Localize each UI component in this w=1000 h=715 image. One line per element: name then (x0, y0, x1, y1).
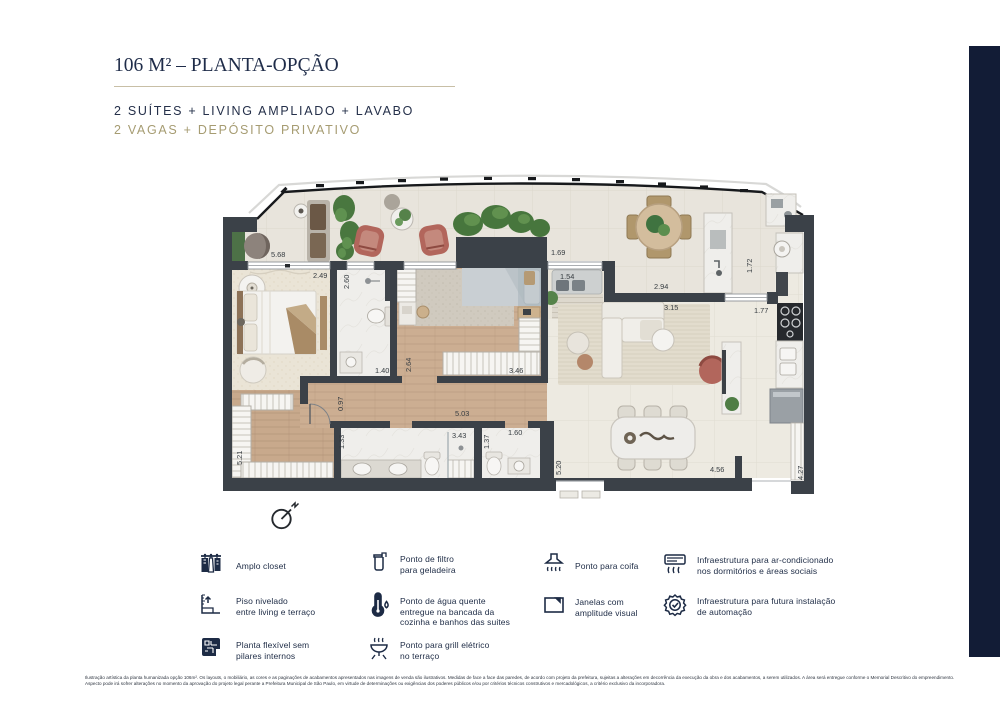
svg-text:5.68: 5.68 (271, 250, 285, 259)
svg-text:1.60: 1.60 (508, 428, 522, 437)
svg-text:1.33: 1.33 (337, 435, 346, 449)
svg-text:3.15: 3.15 (664, 303, 678, 312)
svg-text:1.69: 1.69 (551, 248, 565, 257)
svg-text:0.97: 0.97 (336, 397, 345, 411)
svg-text:5.20: 5.20 (554, 461, 563, 475)
svg-text:5.03: 5.03 (455, 409, 469, 418)
svg-text:4.56: 4.56 (710, 465, 724, 474)
svg-text:5.21: 5.21 (235, 451, 244, 465)
svg-text:2.49: 2.49 (313, 271, 327, 280)
svg-text:4.27: 4.27 (796, 466, 805, 480)
svg-text:1.37: 1.37 (482, 435, 491, 449)
svg-text:1.77: 1.77 (754, 306, 768, 315)
svg-text:1.40: 1.40 (375, 366, 389, 375)
svg-text:1.54: 1.54 (560, 272, 574, 281)
svg-text:1.72: 1.72 (745, 259, 754, 273)
svg-text:2.64: 2.64 (404, 358, 413, 372)
svg-text:3.46: 3.46 (509, 366, 523, 375)
svg-text:3.43: 3.43 (452, 431, 466, 440)
svg-text:2.94: 2.94 (654, 282, 668, 291)
svg-text:2.60: 2.60 (342, 275, 351, 289)
